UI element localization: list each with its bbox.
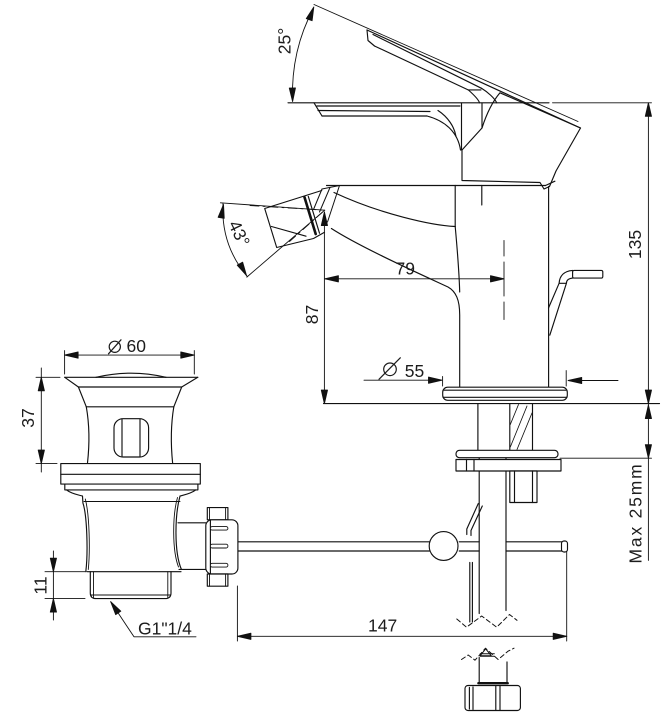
svg-text:147: 147 xyxy=(368,616,397,636)
svg-text:87: 87 xyxy=(302,305,322,324)
svg-text:60: 60 xyxy=(127,336,147,356)
svg-text:G1"1/4: G1"1/4 xyxy=(138,619,192,639)
svg-text:79: 79 xyxy=(396,259,415,279)
svg-text:135: 135 xyxy=(625,230,645,259)
svg-text:25°: 25° xyxy=(275,28,295,54)
svg-text:55: 55 xyxy=(405,361,424,381)
svg-text:37: 37 xyxy=(18,408,38,427)
svg-text:Max 25mm: Max 25mm xyxy=(626,463,646,564)
svg-text:11: 11 xyxy=(31,576,51,594)
